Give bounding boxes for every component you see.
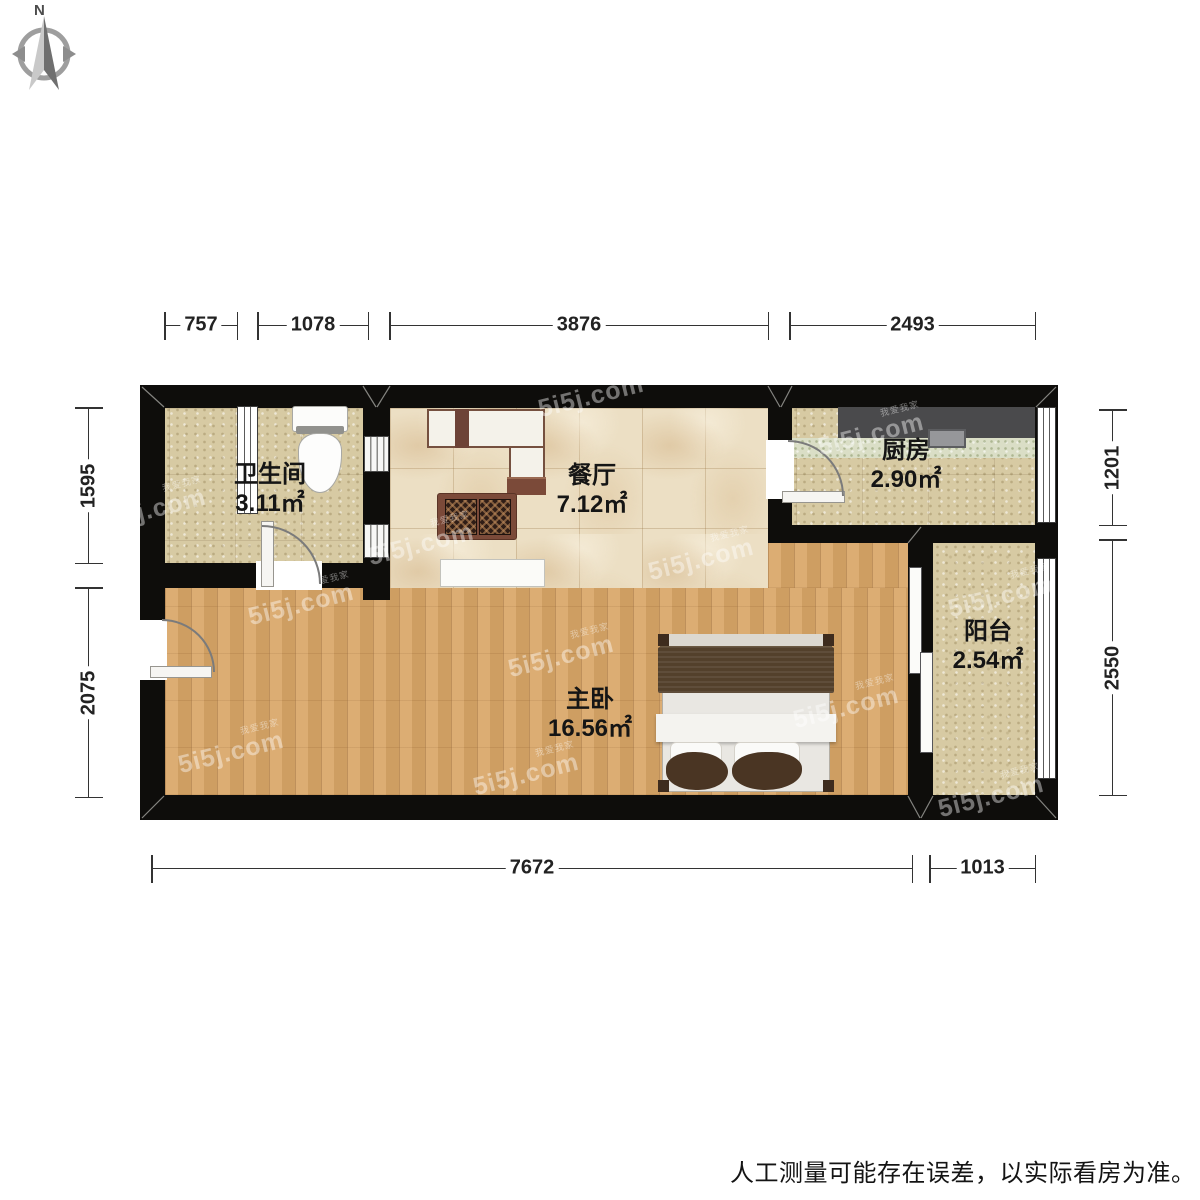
dim-left-1-value: 1595: [79, 459, 100, 512]
dim-top-2-value: 1078: [287, 315, 340, 336]
dim-top-3-value: 3876: [553, 315, 606, 336]
balcony-area: 2.54㎡: [953, 647, 1024, 676]
dim-top-4-value: 2493: [886, 315, 939, 336]
kitchen-label: 厨房 2.90㎡: [871, 437, 942, 495]
dim-right-2: 2550: [1112, 540, 1113, 795]
dim-right-1: 1201: [1112, 410, 1113, 525]
kitchen-name: 厨房: [871, 437, 942, 466]
disclaimer-text: 人工测量可能存在误差，以实际看房为准。: [730, 1153, 1196, 1188]
dining-area: 7.12㎡: [557, 491, 628, 520]
floorplan-page: { "compass": { "north_label": "N" }, "ro…: [0, 0, 1200, 1200]
balcony-label: 阳台 2.54㎡: [953, 618, 1024, 676]
dim-left-2-value: 2075: [79, 666, 100, 719]
bedroom-name: 主卧: [548, 686, 632, 715]
dim-bottom-1-value: 7672: [506, 858, 559, 879]
dim-top-3: 3876: [390, 325, 768, 326]
kitchen-area: 2.90㎡: [871, 466, 942, 495]
bathroom-area: 3.11㎡: [234, 490, 306, 519]
bathroom-label: 卫生间 3.11㎡: [234, 461, 306, 519]
dining-label: 餐厅 7.12㎡: [557, 462, 628, 520]
plan-line-overlay: [0, 0, 1200, 1200]
entry-door-arc: [162, 620, 214, 672]
dim-left-2: 2075: [88, 588, 89, 797]
dim-right-2-value: 2550: [1103, 641, 1124, 694]
balcony-name: 阳台: [953, 618, 1024, 647]
bedroom-label: 主卧 16.56㎡: [548, 686, 632, 744]
dim-bottom-2: 1013: [930, 868, 1035, 869]
dim-top-1: 757: [165, 325, 237, 326]
dim-right-1-value: 1201: [1103, 441, 1124, 494]
dim-left-1: 1595: [88, 408, 89, 563]
kitchen-door-arc: [788, 441, 843, 496]
bedroom-area: 16.56㎡: [548, 715, 632, 744]
dim-top-2: 1078: [258, 325, 368, 326]
dim-bottom-1: 7672: [152, 868, 912, 869]
dining-name: 餐厅: [557, 462, 628, 491]
bathroom-door-arc: [262, 526, 320, 584]
bathroom-name: 卫生间: [234, 461, 306, 490]
dim-top-1-value: 757: [180, 315, 221, 336]
dim-bottom-2-value: 1013: [956, 858, 1009, 879]
dim-top-4: 2493: [790, 325, 1035, 326]
